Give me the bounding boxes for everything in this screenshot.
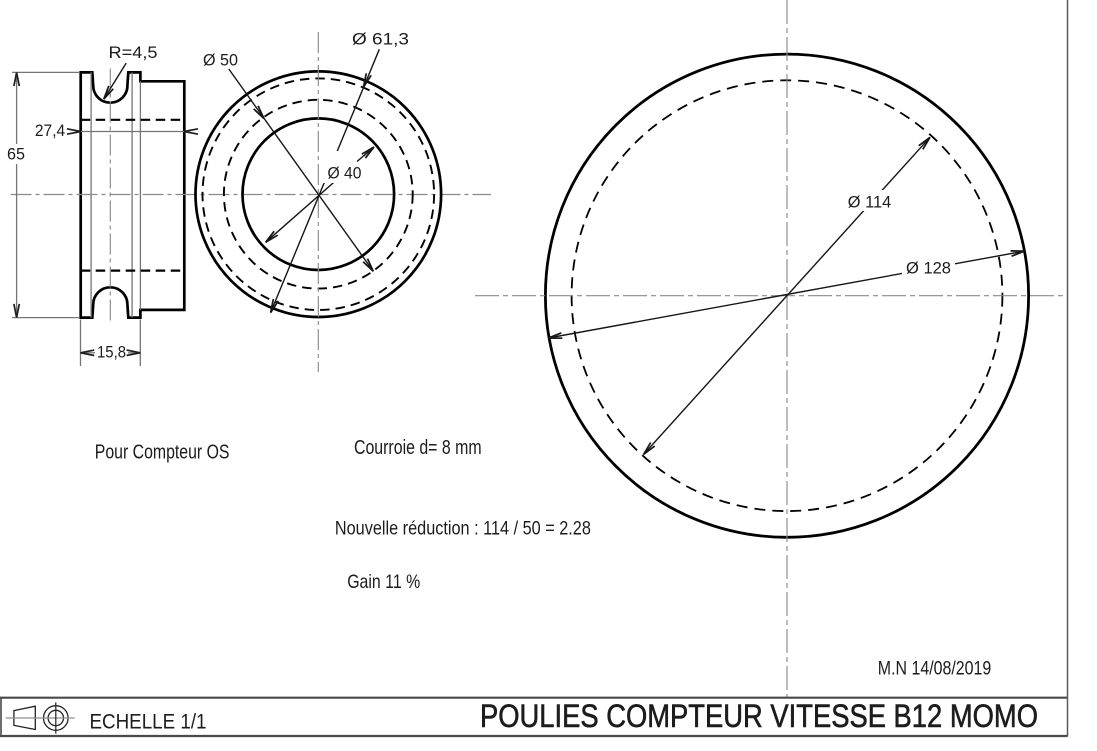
- svg-text:POULIES COMPTEUR VITESSE B12 M: POULIES COMPTEUR VITESSE B12 MOMO: [480, 698, 1038, 734]
- svg-text:Ø 50: Ø 50: [203, 51, 238, 70]
- svg-text:Ø 40: Ø 40: [328, 164, 362, 183]
- svg-text:R=4,5: R=4,5: [109, 43, 158, 62]
- svg-text:M.N 14/08/2019: M.N 14/08/2019: [878, 658, 992, 679]
- svg-text:Ø 128: Ø 128: [906, 259, 951, 278]
- svg-text:Ø 61,3: Ø 61,3: [352, 30, 409, 49]
- svg-text:Ø 114: Ø 114: [848, 192, 891, 211]
- svg-text:Gain 11 %: Gain 11 %: [347, 571, 420, 593]
- svg-text:Nouvelle réduction : 114 / 50: Nouvelle réduction : 114 / 50 = 2.28: [335, 518, 591, 540]
- svg-text:15,8: 15,8: [97, 343, 126, 362]
- svg-text:27,4: 27,4: [35, 121, 65, 140]
- svg-text:ECHELLE 1/1: ECHELLE 1/1: [90, 711, 207, 734]
- svg-text:Courroie d= 8 mm: Courroie d= 8 mm: [354, 437, 482, 459]
- svg-text:Pour Compteur OS: Pour Compteur OS: [95, 442, 230, 464]
- svg-text:65: 65: [7, 145, 25, 164]
